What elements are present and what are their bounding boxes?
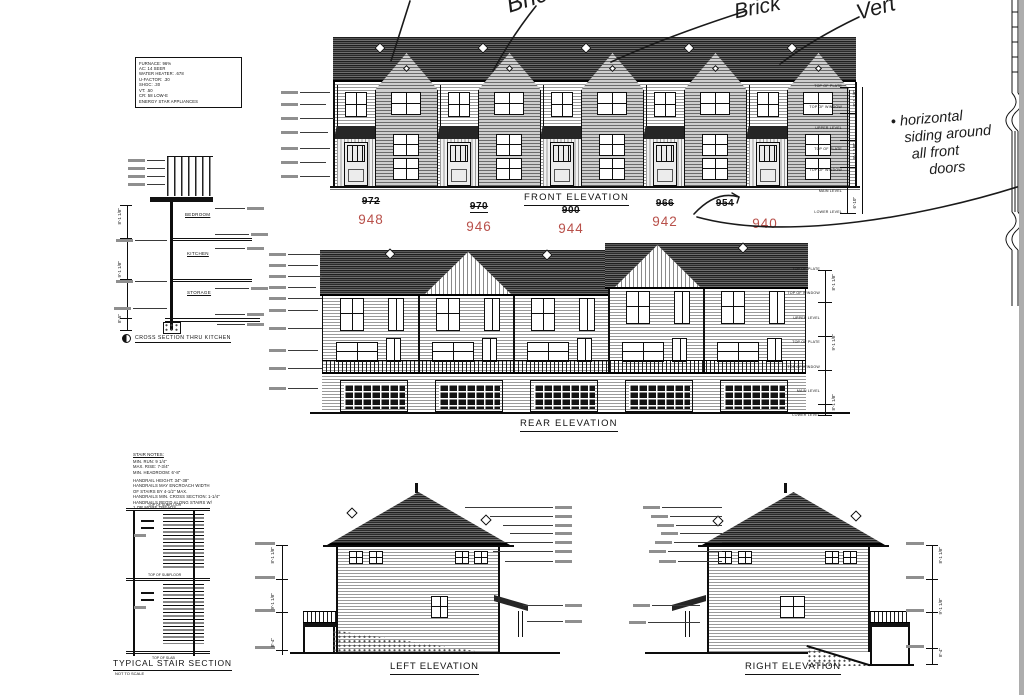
rim-band — [150, 197, 213, 202]
unit-number-pair: 972 948 — [345, 196, 397, 227]
window — [702, 158, 728, 180]
dim-line — [847, 87, 848, 214]
callout — [503, 525, 553, 526]
dim-value: 9'-1 1/8" — [852, 143, 857, 159]
grade-line — [310, 412, 850, 414]
dim-text — [134, 606, 146, 609]
stair-wall — [133, 511, 135, 656]
deck-joist-hatch — [167, 156, 213, 196]
window — [484, 298, 500, 331]
dim-text — [906, 542, 924, 545]
callout — [288, 276, 322, 277]
porch-roof — [334, 126, 378, 139]
dim-value: 8'-1 1/8" — [270, 547, 275, 563]
dim-text — [134, 534, 146, 537]
dim-tick — [276, 650, 288, 651]
callout — [300, 118, 334, 119]
porch-roof — [672, 595, 706, 611]
level-label: TOP OF SUBFLOOR — [148, 503, 181, 507]
gable-bay — [478, 53, 541, 186]
energy-spec-box: FURNACE: 96%AC: 14 SEERWATER HEATER: .67… — [135, 57, 242, 108]
building-edge — [333, 82, 335, 186]
callout — [147, 160, 165, 161]
dim-tick — [276, 545, 288, 546]
gable-bay — [684, 53, 747, 186]
roof-vent-icon — [850, 510, 861, 521]
dim-tick — [840, 213, 856, 214]
callout — [668, 551, 722, 552]
front-elevation: TOP OF PLATETOP OF WINDOWUPPER LEVELTOP … — [300, 0, 900, 235]
porch-roof — [437, 126, 481, 139]
room-label: KITCHEN — [187, 251, 209, 256]
deck-post — [303, 627, 305, 652]
deck-band — [303, 623, 336, 627]
callout — [288, 287, 316, 288]
window — [702, 134, 728, 156]
old-unit-number: 972 — [345, 196, 397, 207]
dim-label: TOP OF WINDOW — [809, 106, 842, 110]
front-door — [344, 142, 368, 186]
callout — [300, 176, 330, 177]
window — [780, 596, 805, 618]
callout — [680, 533, 722, 534]
window — [391, 92, 421, 115]
callout — [147, 176, 165, 177]
dim-text — [906, 645, 924, 648]
callout — [674, 542, 722, 543]
porch-post — [685, 611, 690, 637]
front-door — [756, 142, 780, 186]
floor-line — [172, 238, 252, 241]
not-to-scale: NOT TO SCALE — [115, 671, 144, 676]
callout — [147, 168, 165, 169]
stair-section-title: TYPICAL STAIR SECTION — [113, 658, 232, 671]
dim-value: 8'-1 1/8" — [831, 274, 836, 290]
window — [721, 291, 745, 324]
old-unit-number: 900 — [545, 205, 597, 216]
dim-text — [255, 542, 275, 545]
dim-line — [825, 270, 826, 415]
gable-bay — [375, 53, 438, 186]
unit-entry — [749, 85, 787, 186]
new-unit-number: 944 — [545, 221, 597, 236]
dim-label: TOP OF PLATE — [792, 341, 820, 345]
window — [393, 134, 419, 156]
handwriting-note: • horizontalsiding aroundall frontdoors — [890, 106, 995, 183]
spec-line: ENERGY STAR APPLIANCES — [139, 99, 238, 104]
callout — [288, 254, 322, 255]
callout — [670, 516, 722, 517]
new-unit-number: 940 — [739, 216, 791, 231]
dim-values: 8'-1 1/8"9'-1 1/8"8'-1 1/8" — [828, 274, 838, 410]
window — [825, 551, 839, 564]
patio-window — [336, 342, 378, 362]
dim-value: 9'-1 1/8" — [831, 334, 836, 350]
dim-label: LOWER LEVEL — [814, 211, 842, 215]
dim-value: 6'-10" — [852, 197, 857, 208]
grade-line-2 — [330, 189, 860, 190]
patio-window — [622, 342, 664, 362]
callout — [676, 525, 722, 526]
window — [474, 551, 488, 564]
callout — [490, 516, 553, 517]
patio-door — [482, 338, 497, 362]
callout — [523, 605, 563, 606]
cross-section-detail: BEDROOM KITCHEN STORAGE 8'-1 1/8"9'-1 1/… — [105, 148, 275, 353]
grade-line — [290, 652, 560, 654]
patio-door — [672, 338, 687, 362]
wall-section-line — [170, 202, 173, 330]
rear-elevation-title: REAR ELEVATION — [520, 418, 618, 432]
dim-value: 8'-1 1/8" — [831, 394, 836, 410]
dim-line — [932, 545, 933, 665]
callout — [215, 314, 245, 315]
dim-label: TOP OF PLATE — [814, 148, 842, 152]
room-label: STORAGE — [187, 290, 211, 295]
dim-value: 8'-1 1/8" — [938, 547, 943, 563]
left-elevation: 8'-1 1/8"9'-1 1/8"8'-4" LEFT ELEVATION — [255, 485, 590, 685]
dim-values: 8'-1 1/8"9'-1 1/8"8'-4" — [268, 547, 277, 647]
window — [626, 291, 650, 324]
window — [674, 291, 690, 324]
right-elevation-title: RIGHT ELEVATION — [745, 661, 841, 675]
unit-number-pair: 970 946 — [453, 196, 505, 234]
new-unit-number: 946 — [453, 219, 505, 234]
roof-vent-icon — [346, 507, 357, 518]
dim-value: 9'-1 1/8" — [117, 261, 122, 277]
unit-number-pair: 900 944 — [545, 205, 597, 236]
gable-bay — [581, 53, 644, 186]
callout — [527, 621, 563, 622]
dim-values: 8'-1 1/8"9'-1 1/8"8'-5" — [115, 208, 124, 323]
dim-tick — [276, 612, 288, 613]
floor-line — [172, 279, 252, 282]
callout — [501, 542, 553, 543]
callout — [135, 240, 167, 241]
callout — [288, 328, 322, 329]
window — [700, 92, 730, 115]
callout — [215, 234, 249, 235]
dim-value: 8'-4" — [270, 638, 275, 647]
dim-labels: TOP OF PLATETOP OF WINDOWUPPER LEVELTOP … — [776, 268, 820, 418]
callout — [300, 148, 330, 149]
callout — [217, 324, 245, 325]
dim-line — [282, 545, 283, 655]
dim-value: 9'-1 1/8" — [270, 593, 275, 609]
callout — [288, 298, 322, 299]
porch-roof — [540, 126, 584, 139]
callout — [648, 622, 700, 623]
ridge-pipe — [784, 483, 787, 493]
callout — [288, 310, 318, 311]
window — [599, 134, 625, 156]
footing — [163, 322, 181, 334]
dim-text — [906, 609, 924, 612]
handrail-note-line: HANDRAILS MIN. CROSS SECTION: 1-1/4" — [133, 494, 228, 499]
stair-treads — [163, 514, 204, 570]
unit-number-pair: 966 942 — [639, 198, 691, 229]
callout — [510, 533, 553, 534]
dim-label: TOP OF PLATE — [792, 268, 820, 272]
dim-text — [906, 576, 924, 579]
deck-band — [870, 623, 910, 627]
slab-line — [126, 651, 210, 654]
stair-note-line: MIN. HEADROOM: 6'-8" — [133, 470, 228, 475]
callout — [652, 605, 700, 606]
dim-tick — [926, 664, 938, 665]
dim-tick — [818, 270, 832, 271]
patio-door — [386, 338, 401, 362]
callout — [300, 104, 326, 105]
front-door — [653, 142, 677, 186]
window — [388, 298, 404, 331]
window — [654, 92, 676, 117]
porch-roof — [746, 126, 790, 139]
window — [340, 298, 364, 331]
old-unit-number: 970 — [470, 201, 488, 213]
patio-door — [577, 338, 592, 362]
grade-line — [645, 652, 808, 654]
deck-railing — [322, 360, 806, 374]
dim-tick — [120, 205, 132, 206]
front-door — [550, 142, 574, 186]
callout — [465, 507, 553, 508]
window — [597, 92, 627, 115]
dim-tick — [926, 545, 938, 546]
right-elevation: 8'-1 1/8"9'-1 1/8"8'-4" RIGHT ELEVATION — [640, 485, 980, 685]
patio-window — [717, 342, 759, 362]
callout — [300, 92, 330, 93]
callout — [493, 551, 553, 552]
callout — [215, 248, 245, 249]
dim-line — [862, 87, 863, 214]
dim-tick — [276, 579, 288, 580]
dim-label: TOP OF WINDOW — [787, 292, 820, 296]
window — [531, 298, 555, 331]
callout — [662, 507, 722, 508]
dim-label: TOP OF PLATE — [814, 85, 842, 89]
dim-label: TOP OF WINDOW — [787, 366, 820, 370]
window — [718, 551, 732, 564]
handrail-symbol — [141, 592, 154, 601]
dim-value: 9'-1 1/8" — [938, 598, 943, 614]
stair-notes: MIN. RUN: 9 1/4"MAX. RISE: 7-3/4"MIN. HE… — [133, 459, 228, 475]
front-elevation-title: FRONT ELEVATION — [524, 192, 629, 206]
room-label: BEDROOM — [185, 212, 210, 217]
window — [738, 551, 752, 564]
subfloor-line — [126, 508, 210, 511]
old-unit-number: 966 — [639, 198, 691, 209]
window — [757, 92, 779, 117]
window — [843, 551, 857, 564]
dim-value: 8'-5" — [117, 314, 122, 323]
dim-values: 8'-1 1/8"9'-1 1/8"6'-10" — [849, 90, 859, 208]
dim-tick — [120, 330, 132, 331]
callout — [505, 561, 553, 562]
dim-label: MAIN LEVEL — [819, 190, 842, 194]
window — [369, 551, 383, 564]
patio-window — [432, 342, 474, 362]
new-unit-number: 948 — [345, 212, 397, 227]
cross-section-title: CROSS SECTION THRU KITCHEN — [135, 335, 231, 343]
callout — [288, 388, 318, 389]
unit-number-pair: 954 940 — [739, 193, 791, 231]
callout — [678, 561, 722, 562]
window — [345, 92, 367, 117]
subfloor-line — [126, 578, 210, 581]
front-door — [447, 142, 471, 186]
window — [599, 158, 625, 180]
dim-values: 8'-1 1/8"9'-1 1/8"8'-4" — [936, 547, 945, 657]
unit-entry — [440, 85, 478, 186]
dim-label: UPPER LEVEL — [793, 317, 820, 321]
window — [349, 551, 363, 564]
window — [436, 298, 460, 331]
ridge-pipe — [415, 483, 418, 493]
section-marker-icon — [122, 334, 131, 343]
callout — [135, 281, 167, 282]
garage-door — [625, 380, 693, 412]
patio-window — [527, 342, 569, 362]
page-edge — [1019, 0, 1024, 695]
stair-section: STAIR NOTES: MIN. RUN: 9 1/4"MAX. RISE: … — [110, 450, 245, 685]
window — [393, 158, 419, 180]
callout — [300, 162, 326, 163]
garage-door — [340, 380, 408, 412]
dim-value: 8'-4" — [938, 648, 943, 657]
callout — [300, 132, 328, 133]
left-elevation-title: LEFT ELEVATION — [390, 661, 479, 675]
dim-label: UPPER LEVEL — [815, 127, 842, 131]
callout — [215, 208, 245, 209]
callout — [133, 308, 167, 309]
dim-label: TOP OF WINDOW — [809, 169, 842, 173]
level-label: TOP OF SUBFLOOR — [148, 573, 181, 577]
blueprint-sheet: FURNACE: 96%AC: 14 SEERWATER HEATER: .67… — [0, 0, 1024, 695]
callout — [288, 350, 318, 351]
dim-label: LOWER LEVEL — [792, 414, 820, 418]
porch-post — [518, 611, 523, 637]
window — [496, 134, 522, 156]
dim-tick — [840, 87, 856, 88]
callout — [288, 265, 318, 266]
dim-tick — [818, 415, 832, 416]
dim-label: MAIN LEVEL — [797, 390, 820, 394]
window — [448, 92, 470, 117]
window — [551, 92, 573, 117]
callout — [215, 288, 249, 289]
dim-line — [127, 205, 128, 330]
unit-entry — [543, 85, 581, 186]
old-unit-number: 954 — [716, 198, 734, 209]
window — [496, 158, 522, 180]
stair-treads — [163, 584, 204, 644]
grade-line — [868, 664, 914, 666]
deck-post — [870, 627, 872, 665]
callout — [288, 368, 322, 369]
window — [431, 596, 448, 618]
callout — [147, 184, 165, 185]
garage-door — [435, 380, 503, 412]
window — [494, 92, 524, 115]
window — [579, 298, 595, 331]
handrail-symbol — [141, 520, 154, 529]
window — [455, 551, 469, 564]
stair-notes-title: STAIR NOTES: — [133, 452, 164, 457]
new-unit-number: 942 — [639, 214, 691, 229]
grade-line — [330, 186, 860, 188]
garage-door — [530, 380, 598, 412]
unit-entry — [337, 85, 375, 186]
dim-value: 8'-1 1/8" — [117, 208, 122, 224]
dim-value: 8'-1 1/8" — [852, 90, 857, 106]
dim-labels: TOP OF PLATETOP OF WINDOWUPPER LEVELTOP … — [798, 85, 842, 215]
unit-entry — [646, 85, 684, 186]
porch-roof — [643, 126, 687, 139]
rear-elevation: TOP OF PLATETOP OF WINDOWUPPER LEVELTOP … — [280, 238, 880, 438]
